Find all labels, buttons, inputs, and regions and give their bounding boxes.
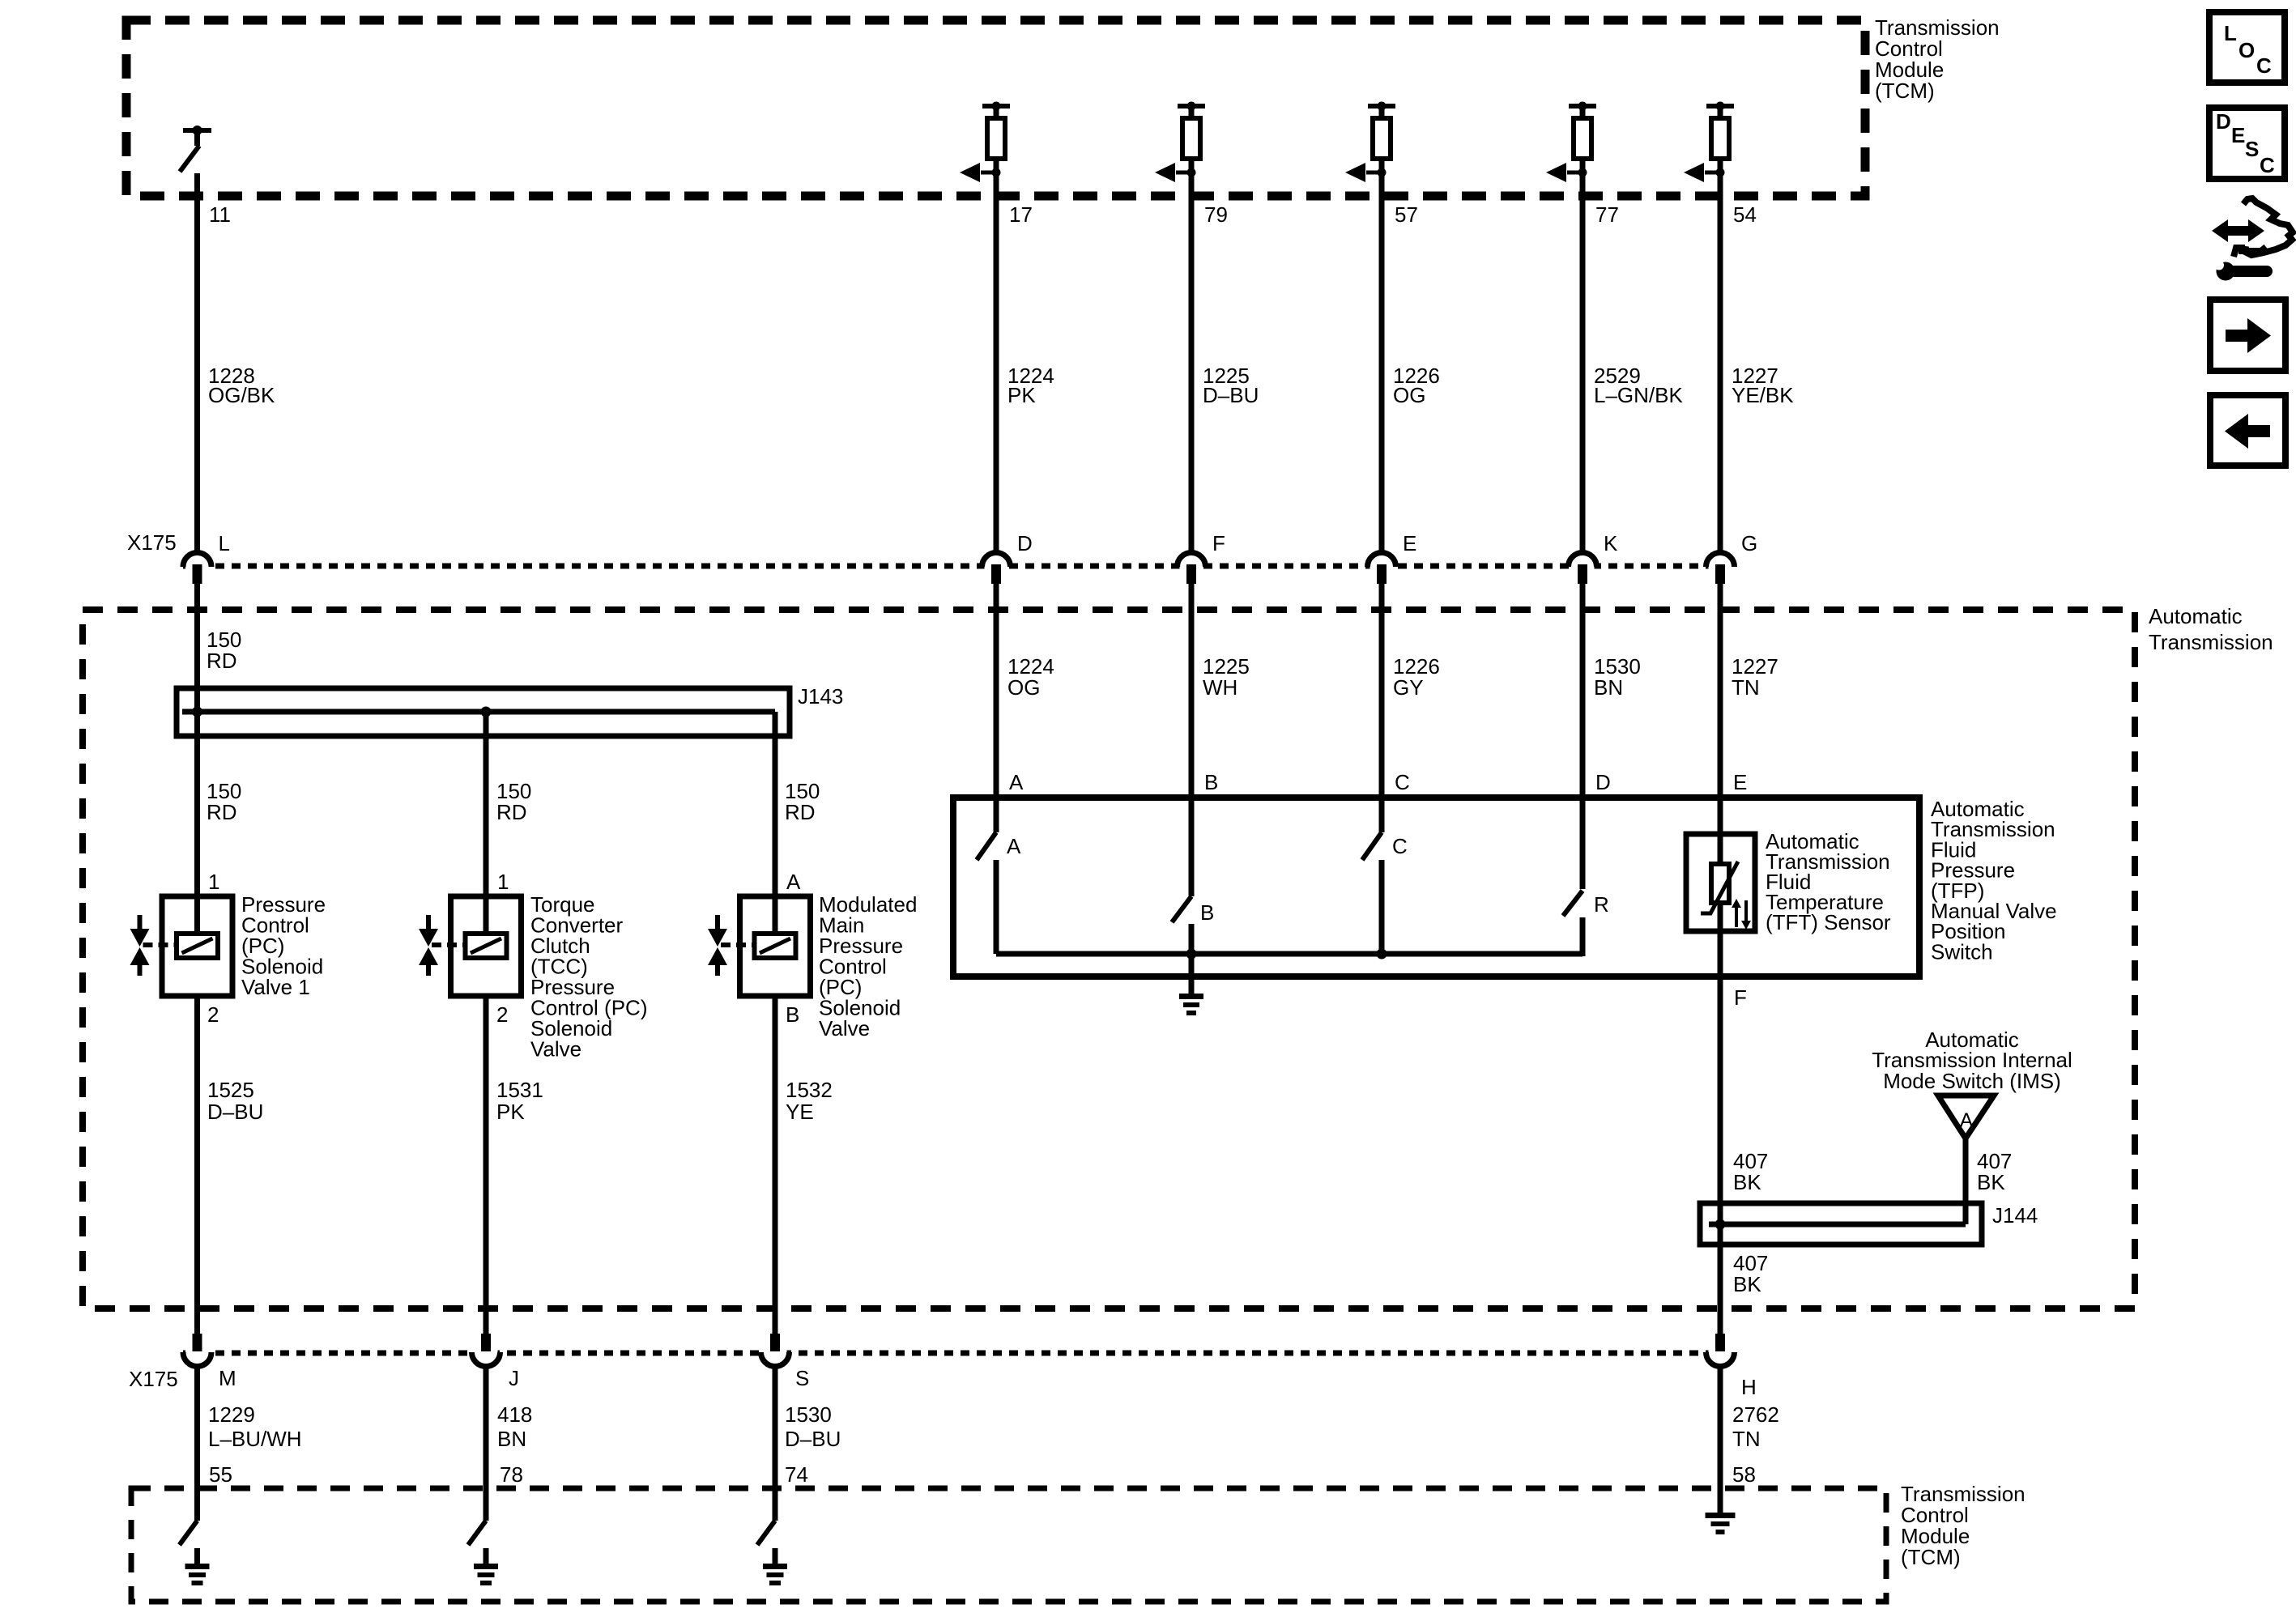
svg-text:2: 2 [207, 1002, 219, 1027]
svg-text:A: A [1007, 834, 1021, 858]
svg-text:L: L [2224, 21, 2237, 45]
svg-text:L–BU/WH: L–BU/WH [208, 1427, 302, 1451]
svg-text:(TFT) Sensor: (TFT) Sensor [1766, 910, 1891, 934]
svg-text:(TCM): (TCM) [1901, 1545, 1961, 1569]
svg-text:Transmission: Transmission [2149, 630, 2273, 654]
svg-text:Mode Switch (IMS): Mode Switch (IMS) [1883, 1069, 2061, 1093]
svg-text:55: 55 [209, 1462, 232, 1487]
svg-text:Valve: Valve [530, 1037, 581, 1062]
svg-text:B: B [786, 1002, 799, 1027]
svg-text:C: C [1392, 834, 1408, 858]
svg-text:418: 418 [497, 1402, 532, 1427]
svg-text:O: O [2238, 38, 2255, 62]
svg-text:G: G [1741, 531, 1757, 555]
svg-text:57: 57 [1395, 202, 1418, 227]
svg-text:Valve: Valve [819, 1016, 870, 1040]
svg-text:D–BU: D–BU [207, 1100, 263, 1124]
svg-text:D: D [1017, 531, 1033, 555]
svg-text:RD: RD [496, 800, 527, 824]
svg-text:C: C [2260, 153, 2275, 177]
svg-text:YE/BK: YE/BK [1732, 383, 1794, 407]
svg-text:1229: 1229 [208, 1402, 255, 1427]
svg-text:BN: BN [1594, 675, 1623, 700]
svg-text:BK: BK [1977, 1170, 2005, 1194]
svg-text:OG: OG [1007, 675, 1040, 700]
svg-text:YE: YE [786, 1100, 814, 1124]
svg-text:B: B [1200, 900, 1214, 925]
svg-text:J143: J143 [798, 684, 843, 709]
svg-text:Valve 1: Valve 1 [241, 975, 310, 999]
svg-text:D–BU: D–BU [1203, 383, 1259, 407]
svg-text:J: J [509, 1366, 519, 1390]
svg-text:1: 1 [497, 870, 509, 894]
svg-text:2: 2 [496, 1002, 508, 1027]
svg-text:WH: WH [1203, 675, 1237, 700]
svg-text:S: S [2245, 137, 2259, 161]
svg-text:L–GN/BK: L–GN/BK [1594, 383, 1683, 407]
svg-text:RD: RD [207, 800, 237, 824]
svg-text:C: C [2256, 53, 2272, 78]
svg-text:Automatic: Automatic [2149, 604, 2243, 628]
svg-text:PK: PK [496, 1100, 525, 1124]
svg-text:J144: J144 [1992, 1203, 2038, 1228]
svg-text:BN: BN [497, 1427, 526, 1451]
svg-text:17: 17 [1009, 202, 1033, 227]
svg-text:L: L [219, 531, 230, 555]
svg-text:Switch: Switch [1931, 939, 1993, 964]
svg-text:R: R [1594, 892, 1609, 917]
svg-text:K: K [1604, 531, 1618, 555]
svg-text:D: D [2216, 109, 2231, 134]
svg-text:TN: TN [1732, 675, 1760, 700]
svg-text:BK: BK [1733, 1272, 1761, 1296]
svg-text:11: 11 [209, 202, 231, 227]
svg-text:78: 78 [500, 1462, 523, 1487]
svg-text:GY: GY [1393, 675, 1424, 700]
svg-text:BK: BK [1733, 1170, 1761, 1194]
svg-text:H: H [1741, 1375, 1757, 1399]
svg-text:2762: 2762 [1732, 1402, 1779, 1427]
svg-text:RD: RD [785, 800, 816, 824]
svg-text:A: A [1009, 770, 1024, 794]
svg-text:C: C [1395, 770, 1410, 794]
svg-text:RD: RD [207, 649, 237, 673]
svg-text:M: M [219, 1366, 236, 1390]
svg-text:TN: TN [1732, 1427, 1761, 1451]
svg-text:X175: X175 [129, 1367, 178, 1391]
svg-text:D: D [1595, 770, 1611, 794]
svg-text:E: E [1733, 770, 1747, 794]
svg-text:1525: 1525 [207, 1078, 254, 1102]
svg-text:A: A [786, 870, 801, 894]
svg-text:OG: OG [1393, 383, 1425, 407]
svg-text:D–BU: D–BU [785, 1427, 841, 1451]
svg-text:54: 54 [1733, 202, 1757, 227]
svg-text:F: F [1734, 985, 1747, 1010]
svg-text:(TCM): (TCM) [1875, 79, 1935, 103]
svg-text:X175: X175 [127, 530, 177, 555]
svg-text:1532: 1532 [786, 1078, 833, 1102]
svg-text:OG/BK: OG/BK [208, 383, 275, 407]
svg-text:B: B [1204, 770, 1218, 794]
svg-text:A: A [1960, 1109, 1974, 1132]
svg-text:1531: 1531 [496, 1078, 543, 1102]
svg-text:58: 58 [1732, 1462, 1756, 1487]
svg-text:77: 77 [1595, 202, 1619, 227]
svg-text:F: F [1212, 531, 1225, 555]
svg-text:79: 79 [1204, 202, 1228, 227]
svg-text:S: S [795, 1366, 809, 1390]
svg-text:74: 74 [785, 1462, 808, 1487]
svg-text:1530: 1530 [785, 1402, 832, 1427]
svg-text:E: E [2231, 123, 2245, 147]
svg-text:1: 1 [208, 870, 219, 894]
svg-text:E: E [1403, 531, 1416, 555]
svg-text:PK: PK [1007, 383, 1036, 407]
